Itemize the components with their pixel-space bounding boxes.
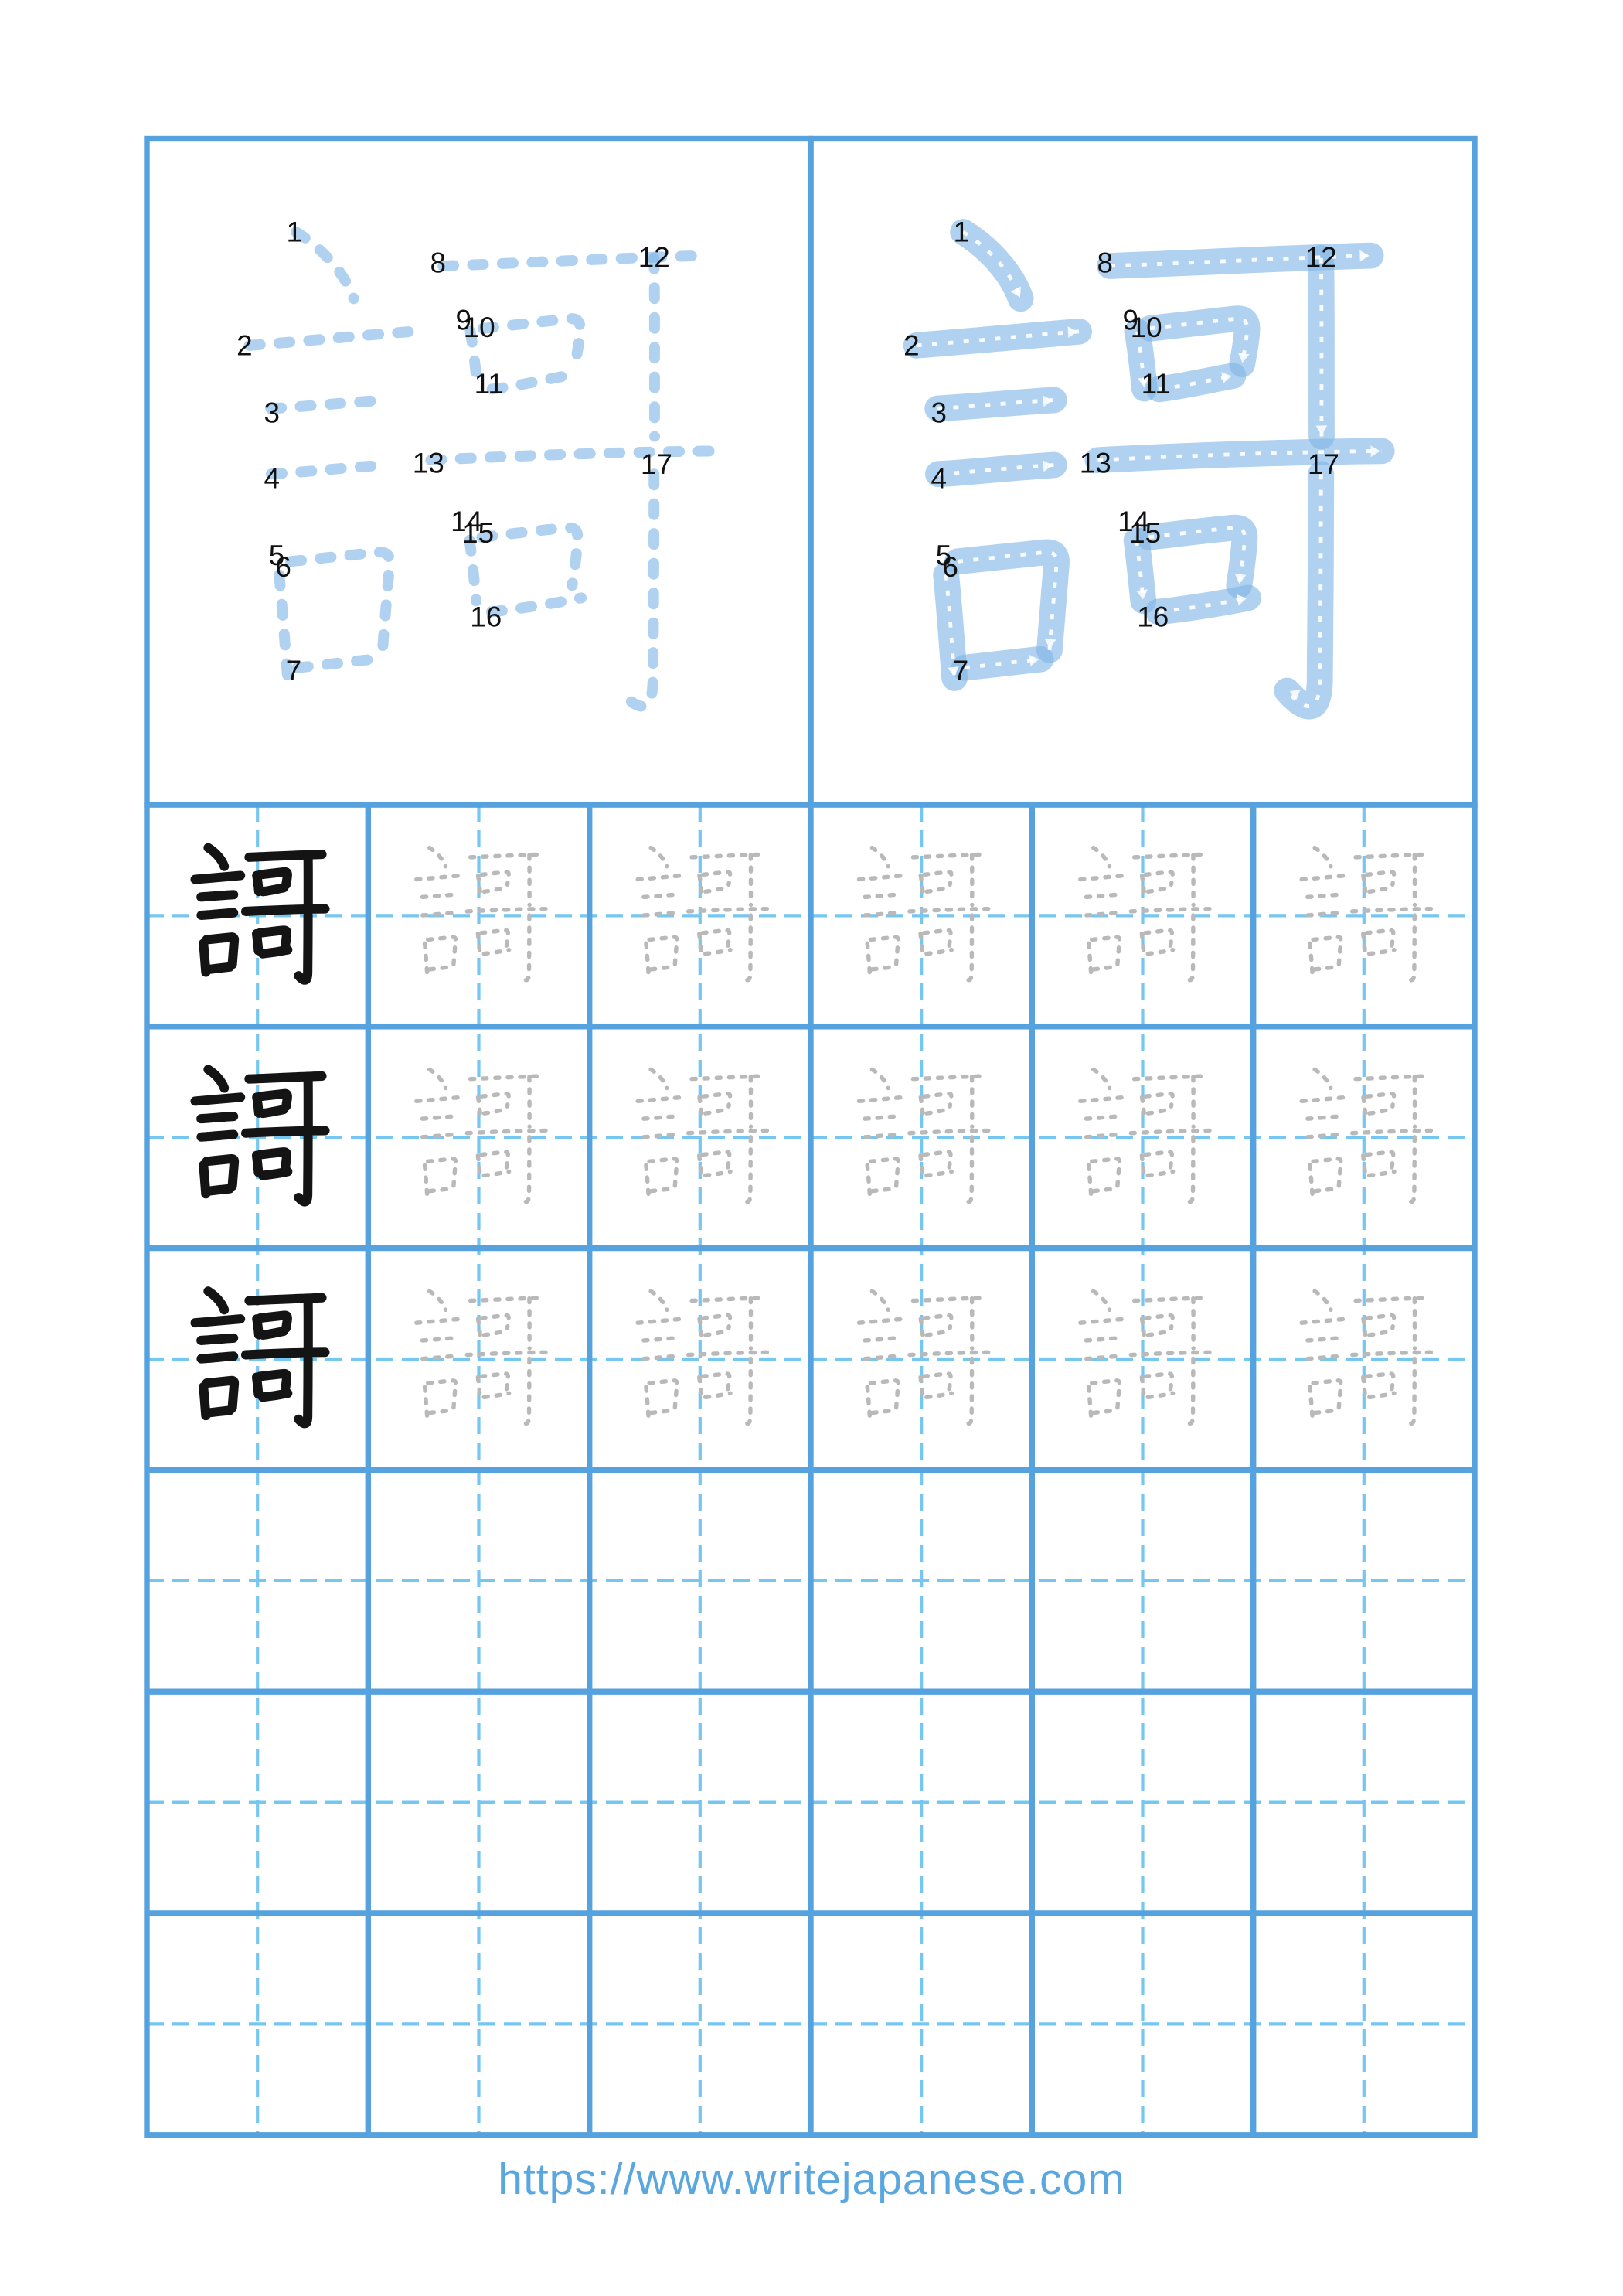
svg-text:https://www.writejapanese.com: https://www.writejapanese.com xyxy=(498,2155,1125,2204)
